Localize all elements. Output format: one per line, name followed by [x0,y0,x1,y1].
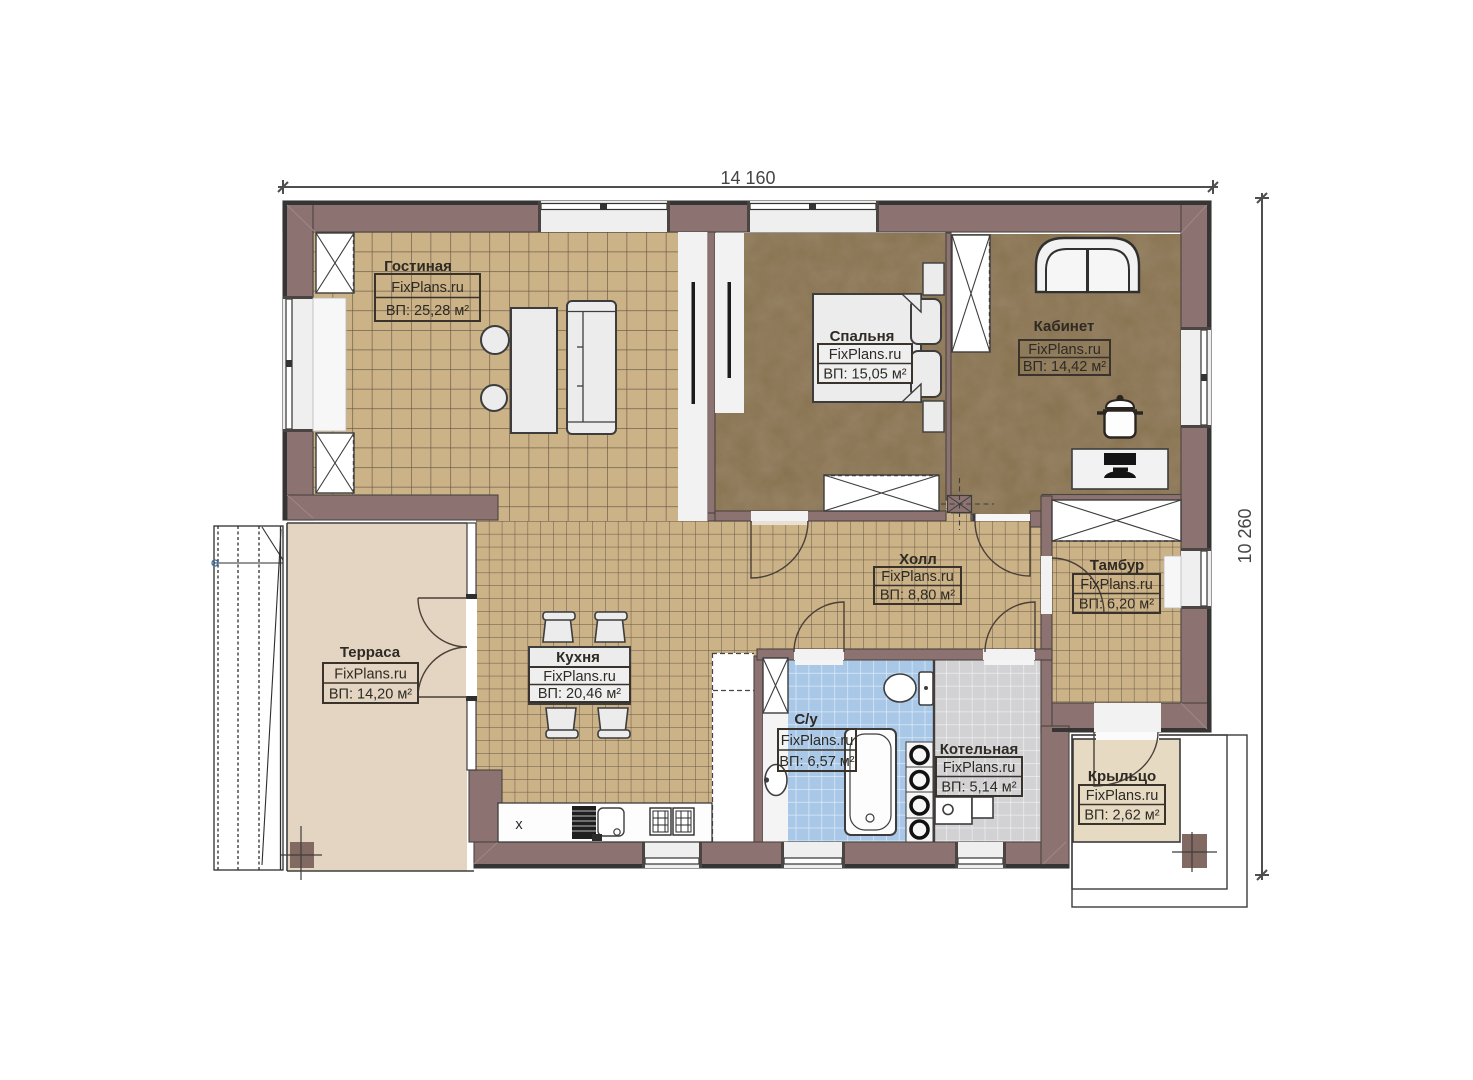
svg-text:FixPlans.ru: FixPlans.ru [334,667,407,683]
svg-text:FixPlans.ru: FixPlans.ru [1086,788,1159,804]
svg-text:ВП: 6,20 м²: ВП: 6,20 м² [1079,597,1154,613]
svg-text:ВП: 14,20 м²: ВП: 14,20 м² [329,687,412,703]
svg-text:Гостиная: Гостиная [384,258,452,275]
svg-text:ВП: 5,14 м²: ВП: 5,14 м² [941,780,1016,796]
svg-text:FixPlans.ru: FixPlans.ru [881,569,954,585]
svg-text:Терраса: Терраса [340,644,401,661]
svg-text:ВП: 20,46 м²: ВП: 20,46 м² [538,686,621,702]
svg-text:Кухня: Кухня [556,649,600,666]
svg-text:Тамбур: Тамбур [1090,557,1144,574]
svg-text:FixPlans.ru: FixPlans.ru [829,347,902,363]
svg-text:С/у: С/у [794,711,818,728]
svg-text:x: x [515,817,523,833]
svg-text:ВП: 15,05 м²: ВП: 15,05 м² [823,367,906,383]
svg-text:14 160: 14 160 [720,168,775,188]
svg-text:FixPlans.ru: FixPlans.ru [1080,577,1153,593]
svg-text:FixPlans.ru: FixPlans.ru [391,280,464,296]
svg-text:ВП: 2,62 м²: ВП: 2,62 м² [1084,808,1159,824]
svg-text:ВП: 6,57 м²: ВП: 6,57 м² [779,754,854,770]
svg-text:FixPlans.ru: FixPlans.ru [543,669,616,685]
svg-text:ВП: 25,28 м²: ВП: 25,28 м² [386,303,469,319]
svg-text:FixPlans.ru: FixPlans.ru [781,733,854,749]
svg-text:FixPlans.ru: FixPlans.ru [943,760,1016,776]
svg-text:FixPlans.ru: FixPlans.ru [1028,342,1101,358]
svg-text:10 260: 10 260 [1235,508,1255,563]
svg-text:Спальня: Спальня [830,328,895,345]
svg-text:ВП: 8,80 м²: ВП: 8,80 м² [880,588,955,604]
svg-text:Котельная: Котельная [940,741,1019,758]
svg-text:Крыльцо: Крыльцо [1088,768,1156,785]
svg-text:Кабинет: Кабинет [1034,318,1095,335]
svg-text:ВП: 14,42 м²: ВП: 14,42 м² [1023,359,1106,375]
svg-text:Холл: Холл [899,551,937,568]
